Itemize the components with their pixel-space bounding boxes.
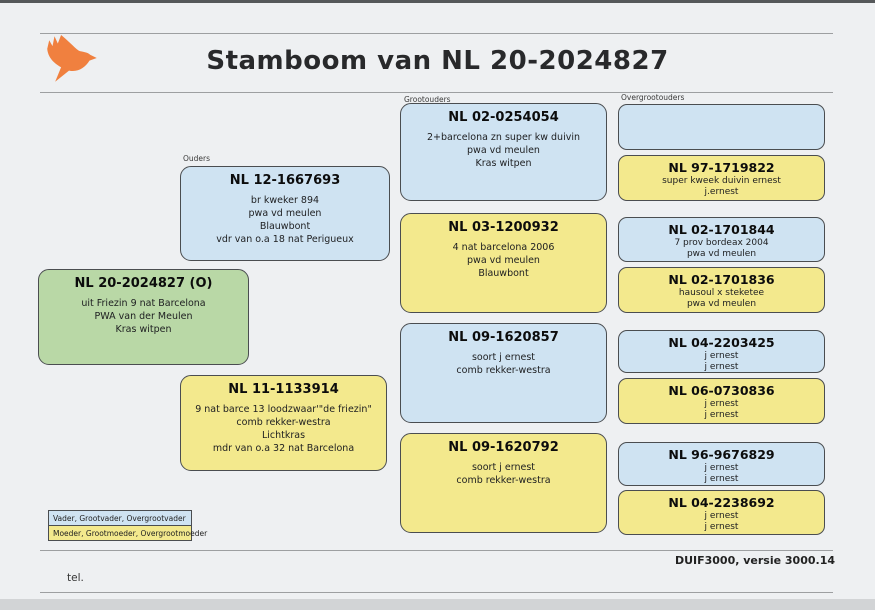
pedigree-box-great-grandparent-7: NL 96-9676829 j ernest j ernest (618, 442, 825, 486)
page-title: Stamboom van NL 20-2024827 (0, 46, 875, 76)
box-line: 9 nat barce 13 loodzwaar'"de friezin" (181, 403, 386, 416)
box-line: j ernest (619, 474, 824, 485)
ring-number: NL 12-1667693 (181, 173, 389, 188)
box-line: mdr van o.a 32 nat Barcelona (181, 442, 386, 455)
box-line: comb rekker-westra (401, 474, 606, 487)
ring-number: NL 04-2238692 (619, 495, 824, 510)
box-line: vdr van o.a 18 nat Perigueux (181, 233, 389, 246)
pedigree-box-grandmother-maternal: NL 09-1620792 soort j ernest comb rekker… (400, 433, 607, 533)
ring-number: NL 02-1701836 (619, 272, 824, 287)
box-line: super kweek duivin ernest (619, 176, 824, 187)
ring-number: NL 96-9676829 (619, 447, 824, 462)
legend: Vader, Grootvader, Overgrootvader Moeder… (48, 510, 192, 541)
box-line: 7 prov bordeax 2004 (619, 238, 824, 249)
box-line: Blauwbont (181, 220, 389, 233)
box-line: pwa vd meulen (401, 254, 606, 267)
ring-number: NL 09-1620857 (401, 330, 606, 345)
column-label-parents: Ouders (183, 154, 210, 163)
ring-number: NL 02-1701844 (619, 222, 824, 237)
box-line: br kweker 894 (181, 194, 389, 207)
tel-label: tel. (67, 572, 84, 584)
box-line: j ernest (619, 362, 824, 373)
pedigree-document: Stamboom van NL 20-2024827 Ouders Grooto… (0, 0, 875, 610)
box-line: soort j ernest (401, 351, 606, 364)
box-line: j ernest (619, 399, 824, 410)
pedigree-box-grandfather-paternal: NL 02-0254054 2+barcelona zn super kw du… (400, 103, 607, 201)
pedigree-box-grandfather-maternal: NL 09-1620857 soort j ernest comb rekker… (400, 323, 607, 423)
legend-female-row: Moeder, Grootmoeder, Overgrootmoeder (49, 526, 191, 540)
box-line: j ernest (619, 410, 824, 421)
box-line: Kras witpen (39, 323, 248, 336)
box-line: pwa vd meulen (619, 299, 824, 310)
box-line: 4 nat barcelona 2006 (401, 241, 606, 254)
footer-rule-top (40, 550, 833, 551)
pedigree-box-great-grandparent-5: NL 04-2203425 j ernest j ernest (618, 330, 825, 373)
box-line: Kras witpen (401, 157, 606, 170)
ring-number: NL 06-0730836 (619, 383, 824, 398)
box-line: hausoul x steketee (619, 288, 824, 299)
column-label-great-grandparents: Overgrootouders (621, 93, 684, 102)
ring-number: NL 11-1133914 (181, 382, 386, 397)
pedigree-box-great-grandparent-6: NL 06-0730836 j ernest j ernest (618, 378, 825, 424)
ring-number: NL 02-0254054 (401, 110, 606, 125)
pedigree-box-father: NL 12-1667693 br kweker 894 pwa vd meule… (180, 166, 390, 261)
box-line: j.ernest (619, 187, 824, 198)
pedigree-box-great-grandparent-2: NL 97-1719822 super kweek duivin ernest … (618, 155, 825, 201)
box-line: j ernest (619, 522, 824, 533)
ring-number: NL 20-2024827 (O) (39, 276, 248, 291)
box-line: uit Friezin 9 nat Barcelona (39, 297, 248, 310)
pedigree-box-great-grandparent-3: NL 02-1701844 7 prov bordeax 2004 pwa vd… (618, 217, 825, 262)
box-line: pwa vd meulen (401, 144, 606, 157)
footer-rule-bottom (40, 592, 833, 593)
scan-top-edge (0, 0, 875, 3)
header-rule-top (40, 33, 833, 34)
box-line: comb rekker-westra (401, 364, 606, 377)
header-rule-bottom (40, 92, 833, 93)
pedigree-box-great-grandparent-8: NL 04-2238692 j ernest j ernest (618, 490, 825, 535)
box-line: Blauwbont (401, 267, 606, 280)
box-line: comb rekker-westra (181, 416, 386, 429)
box-line: PWA van der Meulen (39, 310, 248, 323)
ring-number: NL 97-1719822 (619, 160, 824, 175)
box-line: Lichtkras (181, 429, 386, 442)
box-line: j ernest (619, 511, 824, 522)
pedigree-box-mother: NL 11-1133914 9 nat barce 13 loodzwaar'"… (180, 375, 387, 471)
ring-number: NL 03-1200932 (401, 220, 606, 235)
pedigree-box-great-grandparent-1 (618, 104, 825, 150)
scan-bottom-edge (0, 599, 875, 610)
box-line: pwa vd meulen (619, 249, 824, 260)
box-line: pwa vd meulen (181, 207, 389, 220)
program-version: DUIF3000, versie 3000.14 (675, 554, 835, 567)
pedigree-box-grandmother-paternal: NL 03-1200932 4 nat barcelona 2006 pwa v… (400, 213, 607, 313)
pedigree-box-subject: NL 20-2024827 (O) uit Friezin 9 nat Barc… (38, 269, 249, 365)
ring-number: NL 09-1620792 (401, 440, 606, 455)
legend-male-row: Vader, Grootvader, Overgrootvader (49, 511, 191, 526)
pedigree-box-great-grandparent-4: NL 02-1701836 hausoul x steketee pwa vd … (618, 267, 825, 313)
box-line: 2+barcelona zn super kw duivin (401, 131, 606, 144)
ring-number: NL 04-2203425 (619, 335, 824, 350)
box-line: j ernest (619, 463, 824, 474)
box-line: soort j ernest (401, 461, 606, 474)
box-line: j ernest (619, 351, 824, 362)
